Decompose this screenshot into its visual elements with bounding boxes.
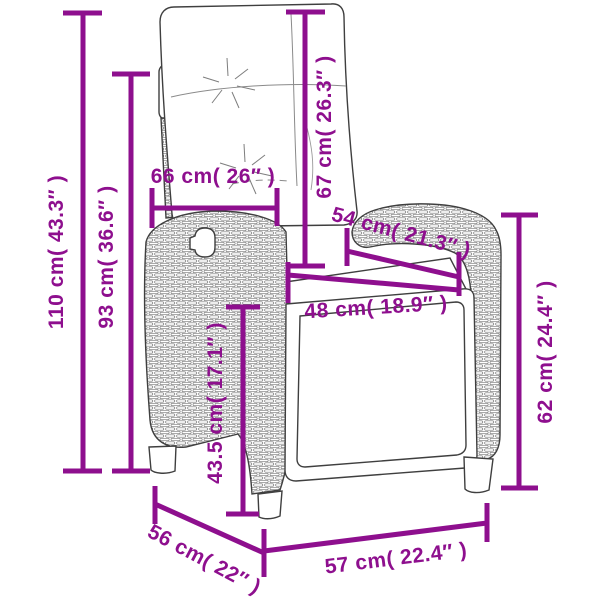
dim-label-67: 67 cm( 26.3″ ) xyxy=(313,55,337,198)
dim-label-93: 93 cm( 36.6″ ) xyxy=(95,185,119,328)
dimension-diagram: 110 cm( 43.3″ ) 93 cm( 36.6″ ) 66 cm( 26… xyxy=(0,0,600,600)
dim-label-66: 66 cm( 26″ ) xyxy=(151,165,276,189)
dim-label-62: 62 cm( 24.4″ ) xyxy=(534,280,558,423)
dim-line-62 xyxy=(501,215,538,488)
dim-label-43-5: 43.5 cm( 17.1″ ) xyxy=(204,322,228,484)
chair-line-drawing xyxy=(0,0,600,600)
dim-label-110: 110 cm( 43.3″ ) xyxy=(45,175,69,329)
